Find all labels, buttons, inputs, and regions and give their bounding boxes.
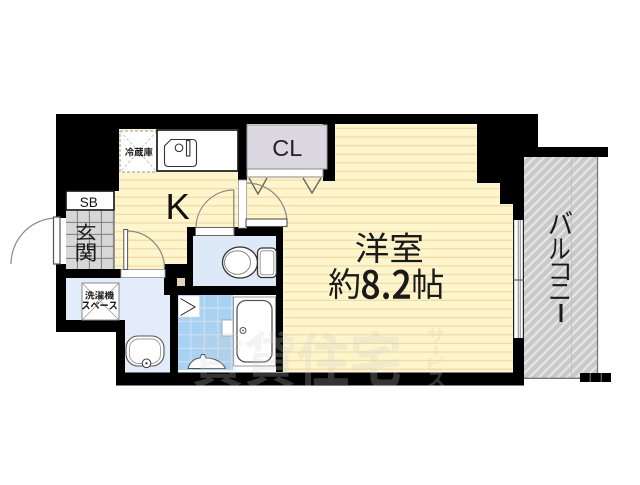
svg-text:SB: SB <box>80 195 98 210</box>
svg-text:CL: CL <box>272 135 302 161</box>
svg-text:K: K <box>166 186 190 227</box>
